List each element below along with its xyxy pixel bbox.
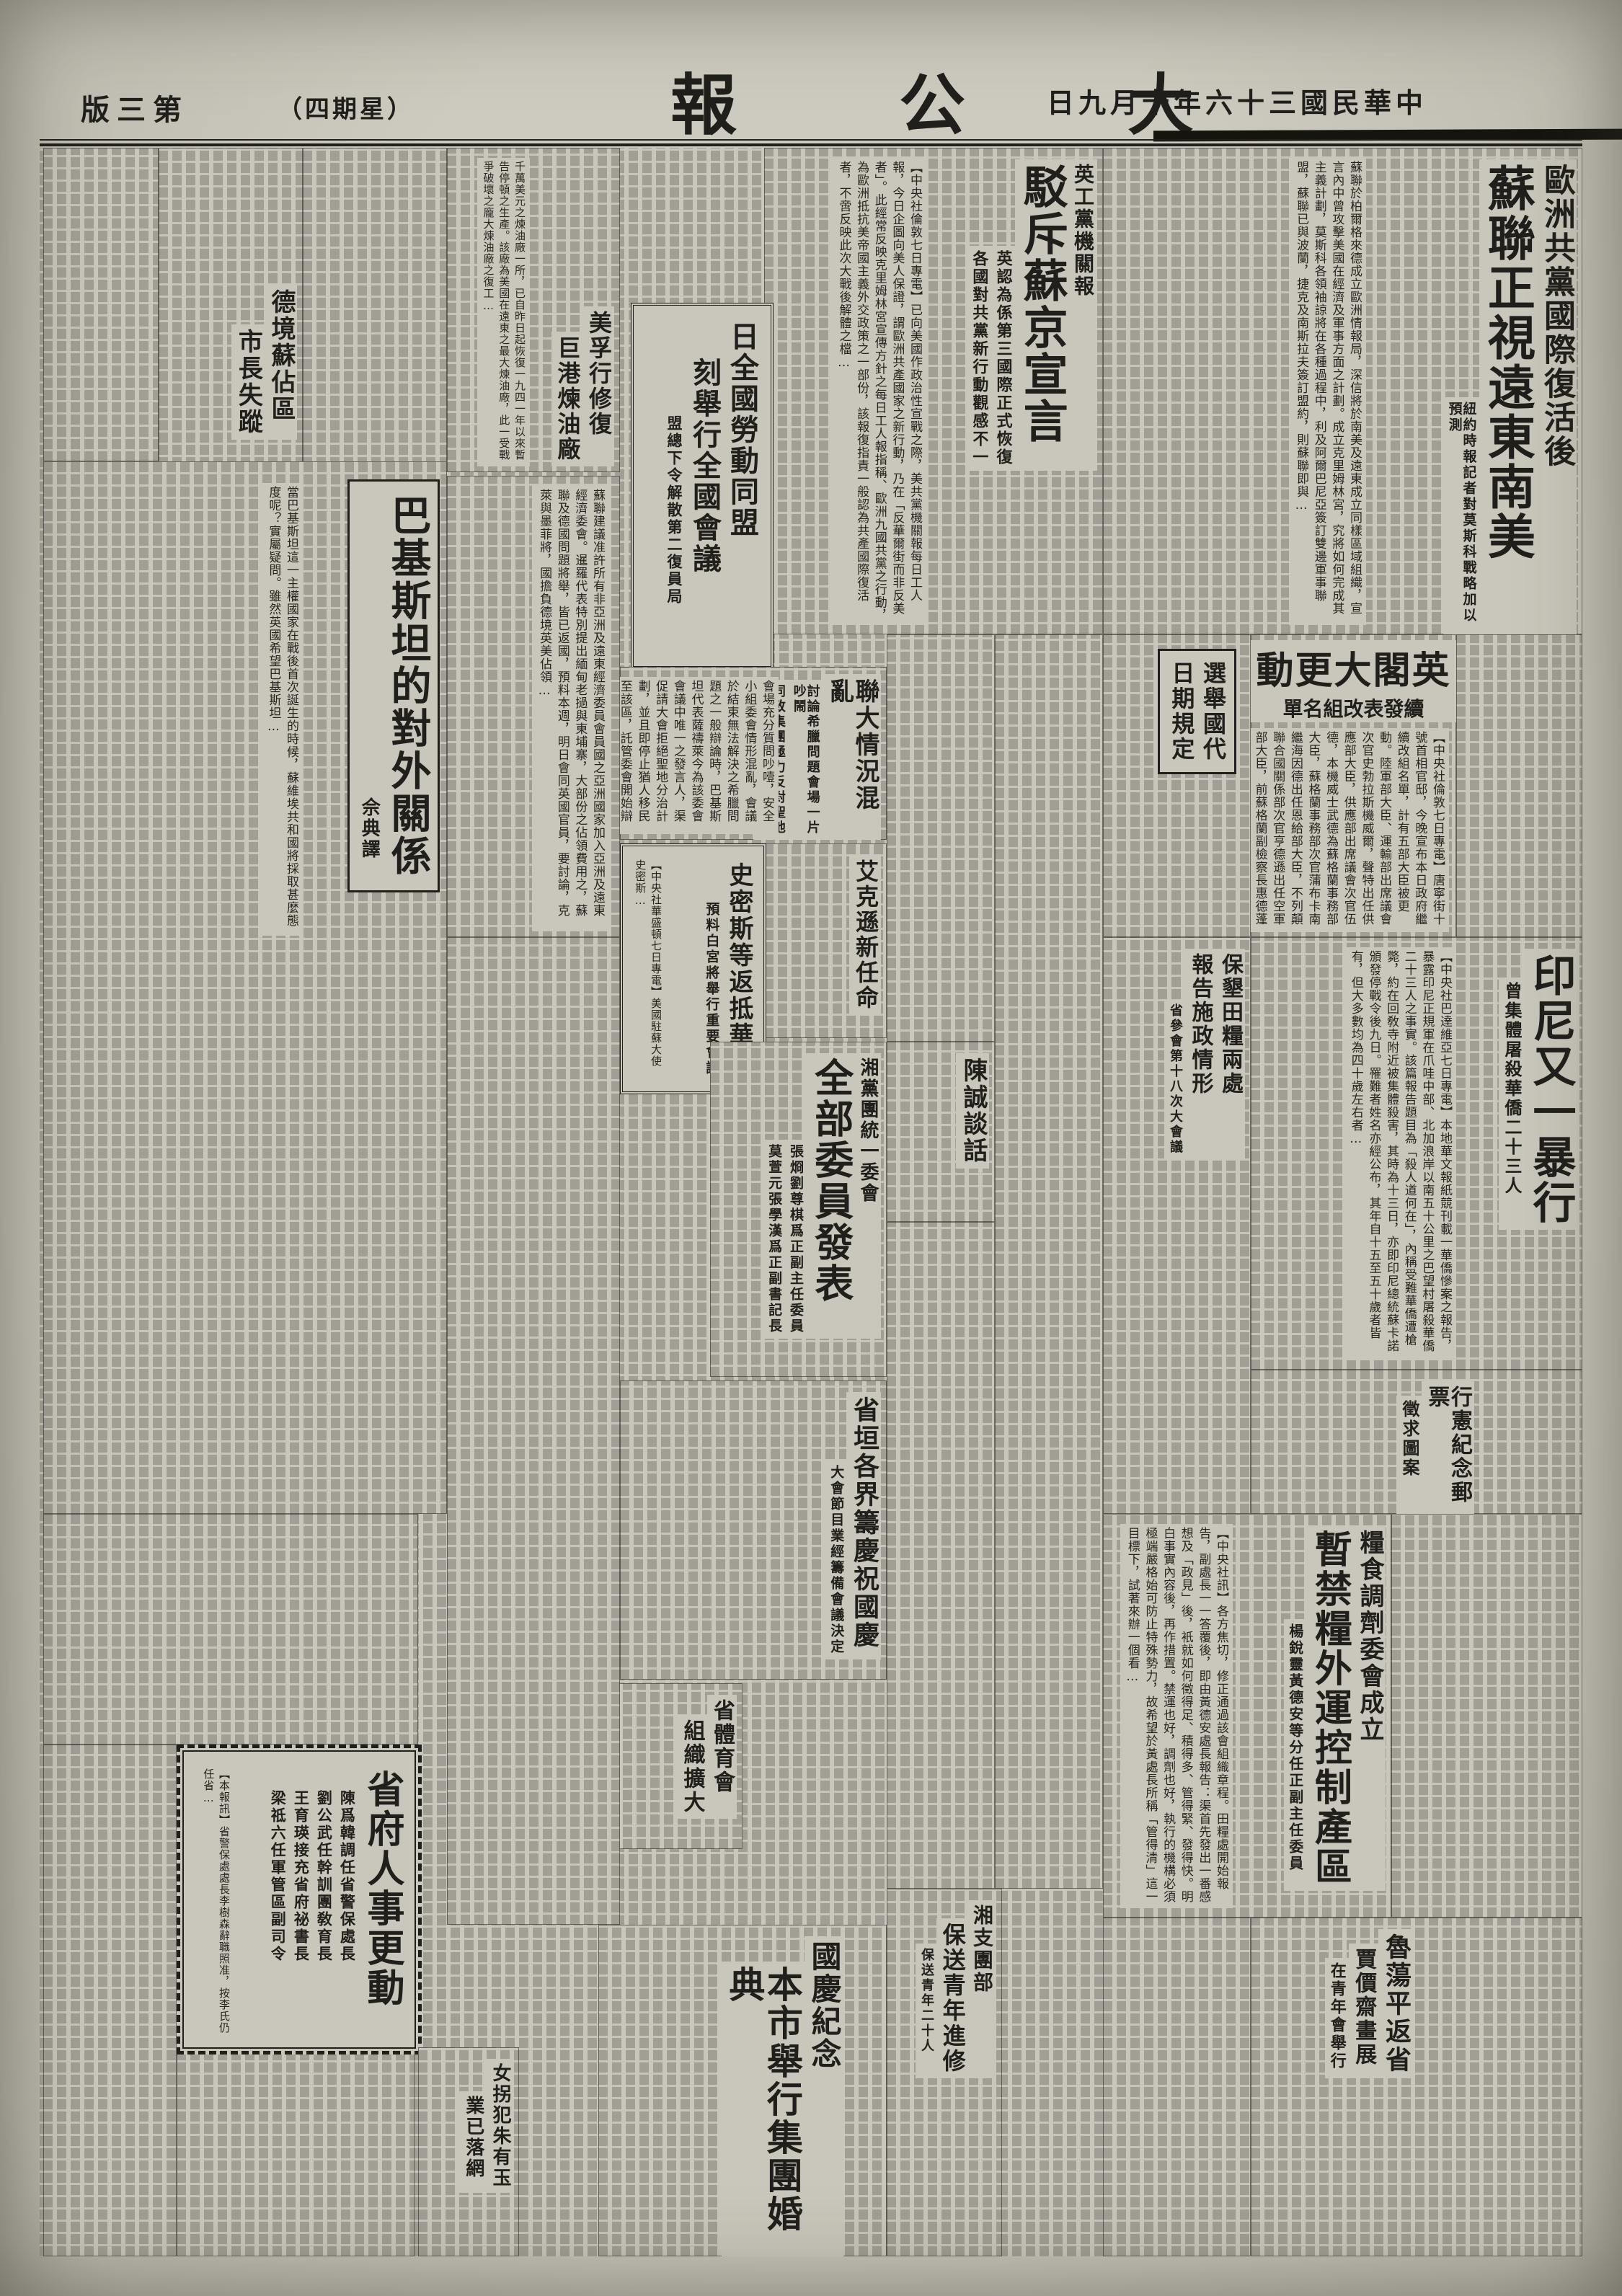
article-text-block bbox=[43, 148, 159, 461]
body-text: 蘇聯於柏爾格來德成立歐洲情報局，深信將於南美及遠東成立同樣區域組織，宣言內中曾攻… bbox=[1289, 158, 1366, 625]
body-text: 【中央社倫敦七日專電】唐寧街十號首相官邸，今晚宣布本日政府繼續改組名單，計有五部… bbox=[1251, 728, 1449, 932]
subtitle: 盟總下令解散第二復員局 bbox=[662, 411, 686, 610]
article-text-block bbox=[1456, 634, 1582, 937]
article-sports-association: 省體育會 組織擴大 bbox=[609, 1683, 743, 1849]
subtitle: 陳爲韓調任省警保處長 bbox=[335, 1786, 358, 2012]
article-youth-corps: 湘支團部 保送青年進修 保送青年二十人 bbox=[887, 1889, 1002, 2256]
subtitle: 單名組改表發續 bbox=[1251, 693, 1456, 722]
headline: 省府人事更動 bbox=[358, 1765, 405, 2012]
headline: 印尼又一暴行 bbox=[1524, 949, 1577, 1230]
article-constitution-stamp: 行憲紀念郵票 徵求圖案 bbox=[1251, 1370, 1582, 1514]
article-refute-moscow: 英工黨機關報 駁斥蘇京宣言 英認為係第三國際正式恢復 各國對共黨新行動觀感不一 … bbox=[764, 148, 1103, 634]
subtitle: 在青年會舉行 bbox=[1325, 1958, 1349, 2078]
headline: 聯大情況混亂 bbox=[823, 674, 881, 840]
body-text: 【中央社倫敦七日專電】已向美國作政治性宣戰之際，美共黨機關報每日工人報，今日企圖… bbox=[832, 158, 926, 625]
subtitle: 張烱劉尊棋爲正副主任委員 bbox=[784, 1140, 806, 1339]
article-group-wedding: 國慶紀念 本市舉行集團婚典 bbox=[598, 1925, 887, 2256]
subtitle: 楊銳靈黃德安等分任正副主任委員 bbox=[1284, 1619, 1306, 1891]
article-text-block bbox=[43, 1745, 177, 2256]
article-admin-report: 保墾田糧兩處 報告施政情形 省參會第十八次大會議 bbox=[1103, 937, 1251, 1514]
header-rule bbox=[40, 139, 1582, 141]
article-personnel-changes: 省府人事更動 陳爲韓調任省警保處長 劉公武任幹訓團敎育長 王育瑛接充省府祕書長 … bbox=[177, 1745, 422, 2055]
headline: 本市舉行集團婚典 bbox=[722, 1962, 805, 2256]
article-text-block bbox=[1391, 1514, 1582, 1918]
headline: 報告施政情形 bbox=[1185, 949, 1215, 1159]
headline: 業已落網 bbox=[459, 2091, 486, 2193]
subtitle: 劉公武任幹訓團敎育長 bbox=[312, 1786, 335, 2012]
headline: 保墾田糧兩處 bbox=[1215, 949, 1246, 1159]
article-japan-labor-box: 日全國勞動同盟 刻舉行全國會議 盟總下令解散第二復員局 bbox=[631, 303, 774, 669]
article-hunan-committee: 湘黨團統一委會 全部委員發表 張烱劉尊棋爲正副主任委員 莫萱元張學漢爲正副書記長 bbox=[710, 1042, 887, 1377]
headline: 省垣各界籌慶祝國慶 bbox=[846, 1392, 881, 1659]
subtitle: 莫萱元張學漢爲正副書記長 bbox=[763, 1140, 784, 1339]
article-text-block bbox=[177, 2047, 415, 2256]
subtitle: 徵求圖案 bbox=[1396, 1396, 1422, 1514]
page-number-label: 版三第 bbox=[81, 87, 189, 128]
article-bottom-right-items: 魯蕩平返省 賈價齋畫展 在青年會舉行 bbox=[1251, 1918, 1582, 2256]
headline: 德境蘇佔區 bbox=[264, 285, 297, 440]
weekday-label: （四期星） bbox=[278, 89, 415, 125]
article-mayor-missing: 德境蘇佔區 市長失蹤 bbox=[159, 148, 303, 479]
subtitle: 大會節目業經籌備會議決定 bbox=[825, 1461, 846, 1659]
body-text: 【本報訊】省警保處處長李樹森辭職照准，按李氏仍任省… bbox=[198, 1765, 235, 2038]
article-text-block bbox=[43, 1514, 418, 1745]
article-acheson: 艾克遜新任命 bbox=[764, 843, 887, 1038]
article-text-block bbox=[1103, 1918, 1251, 2256]
headline: 刻舉行全國會議 bbox=[686, 353, 723, 610]
subtitle: 英認為係第三國際正式恢復 bbox=[991, 246, 1014, 471]
headline: 魯蕩平返省 bbox=[1378, 1929, 1413, 2078]
headline: 巴基斯坦的對外關係 bbox=[382, 490, 432, 882]
kicker: 湘支團部 bbox=[968, 1900, 996, 2078]
body-text: 當巴基斯坦這一主權國家在戰後首次誕生的時候，蘇維埃共和國將採取甚麼態度呢？實屬疑… bbox=[262, 483, 303, 936]
headline: 歐洲共黨國際復活後 bbox=[1536, 159, 1577, 634]
article-kidnapper-caught: 女拐犯朱有玉 業已落網 bbox=[418, 2047, 519, 2256]
kicker: 湘黨團統一委會 bbox=[854, 1053, 881, 1339]
headline: 陳誠談話 bbox=[956, 1053, 989, 1169]
article-text-block bbox=[887, 634, 995, 1042]
article-text-block bbox=[995, 634, 1103, 1889]
headline: 蘇聯正視遠東南美 bbox=[1479, 159, 1536, 634]
header-rule bbox=[40, 143, 1582, 146]
headline: 動更大閣英 bbox=[1251, 640, 1456, 694]
subtitle: 王育瑛接充省府祕書長 bbox=[289, 1786, 312, 2012]
kicker: 國慶紀念 bbox=[805, 1936, 843, 2256]
article-ecafe: 蘇聯建議准許所有非亞洲及遠東經濟委員會員國之亞洲國家加入亞洲及遠東經濟委會。暹羅… bbox=[447, 476, 620, 937]
headline: 巨港煉油廠 bbox=[551, 332, 583, 466]
headline: 賈價齋畫展 bbox=[1349, 1943, 1379, 2078]
byline: 佘典譯 bbox=[355, 793, 382, 882]
headline: 市長失蹤 bbox=[231, 324, 265, 440]
headline: 女拐犯朱有玉 bbox=[487, 2059, 513, 2193]
headline: 保送青年進修 bbox=[936, 1918, 968, 2078]
article-indonesia-atrocity: 印尼又一暴行 曾集體屠殺華僑二十三人 【中央社巴達維亞七日專電】本地華文報紙競刊… bbox=[1251, 937, 1582, 1370]
kicker: 糧食調劑委會成立 bbox=[1352, 1525, 1386, 1891]
page-body: 歐洲共黨國際復活後 蘇聯正視遠東南美 紐約時報記者對莫斯科戰略加以預測 蘇聯於柏… bbox=[40, 148, 1582, 2256]
body-text: 【中央社訊】各方焦切，修正通過該會組織章程。田糧處開始報告，副處長一一答覆後，即… bbox=[1120, 1524, 1233, 1908]
headline: 組織擴大 bbox=[677, 1715, 707, 1819]
subtitle: 梁祗六任軍管區副司令 bbox=[266, 1786, 289, 2012]
article-text-block bbox=[887, 1222, 995, 1889]
headline: 日全國勞動同盟 bbox=[723, 317, 761, 610]
body-text: 蘇聯建議准許所有非亞洲及遠東經濟委員會員國之亞洲國家加入亞洲及遠東經濟委會。暹羅… bbox=[532, 486, 609, 931]
subtitle: 討論希臘問題會場一片吵鬧 bbox=[788, 680, 823, 840]
headline: 省體育會 bbox=[707, 1695, 737, 1819]
headline: 駁斥蘇京宣言 bbox=[1015, 159, 1069, 471]
article-refinery: 美孚行修復 巨港煉油廠 千萬美元之煉油廠一所，已自昨日起恢復一九四一年以來暫告停… bbox=[447, 148, 620, 472]
article-uk-cabinet: 動更大閣英 單名組改表發續 【中央社倫敦七日專電】唐寧街十號首相官邸，今晚宣布本… bbox=[1251, 634, 1456, 937]
article-election-date: 選舉國代 日期規定 bbox=[1103, 634, 1251, 937]
subtitle: 各國對共黨新行動觀感不一 bbox=[967, 246, 991, 471]
subtitle: 省參會第十八次大會議 bbox=[1164, 999, 1185, 1159]
headline: 美孚行修復 bbox=[582, 306, 614, 466]
body-text: 千萬美元之煉油廠一所，已自昨日起恢復一九四一年以來暫告停頓之生產。該廠為美國在遠… bbox=[477, 158, 530, 466]
body-text: 會場充分質問吵噎，安全小組委會情形混亂，會議於結束無法解決之希臘問題之一般辯論時… bbox=[620, 677, 779, 834]
body-text: 【中央社華盛頓七日專電】美國駐蘇大使史密斯… bbox=[629, 856, 667, 1078]
kicker: 英工黨機關報 bbox=[1069, 159, 1097, 471]
subtitle: 曾集體屠殺華僑二十三人 bbox=[1499, 978, 1524, 1230]
subtitle: 保送青年二十人 bbox=[916, 1943, 936, 2078]
article-text-block bbox=[447, 937, 620, 1925]
headline: 艾克遜新任命 bbox=[849, 855, 881, 1015]
subtitle: 紐約時報記者對莫斯科戰略加以預測 bbox=[1443, 397, 1479, 634]
article-grain-control: 糧食調劑委會成立 暫禁糧外運控制產區 楊銳靈黃德安等分任正副主任委員 【中央社訊… bbox=[1103, 1514, 1391, 1918]
article-text-block bbox=[303, 148, 447, 479]
headline: 全部委員發表 bbox=[806, 1053, 854, 1339]
article-national-day-prep: 省垣各界籌慶祝國慶 大會節目業經籌備會議決定 bbox=[620, 1380, 887, 1680]
headline: 行憲紀念郵票 bbox=[1422, 1381, 1474, 1514]
newspaper-page: 日九月十年六十三國民華中 報公大 （四期星） 版三第 歐洲共黨國際復活後 蘇聯正… bbox=[0, 0, 1622, 2296]
article-un-confusion: 聯大情況混亂 討論希臘問題會場一片吵鬧 同致集團極力反對聖地分治 會場充分質問吵… bbox=[620, 667, 887, 840]
headline: 選舉國代 bbox=[1197, 657, 1228, 766]
article-soviet-strategy: 歐洲共黨國際復活後 蘇聯正視遠東南美 紐約時報記者對莫斯科戰略加以預測 蘇聯於柏… bbox=[1103, 148, 1582, 634]
headline: 日期規定 bbox=[1166, 657, 1197, 766]
body-text: 【中央社巴達維亞七日專電】本地華文報紙競刊載一華僑慘案之報告，暴露印尼正規軍在爪… bbox=[1344, 947, 1456, 1360]
article-chencheng: 陳誠談話 bbox=[887, 1042, 995, 1222]
headline: 暫禁糧外運控制產區 bbox=[1306, 1525, 1353, 1891]
article-pakistan-feature: 巴基斯坦的對外關係 佘典譯 當巴基斯坦這一主權國家在戰後首次誕生的時候，蘇維埃共… bbox=[43, 461, 447, 1514]
